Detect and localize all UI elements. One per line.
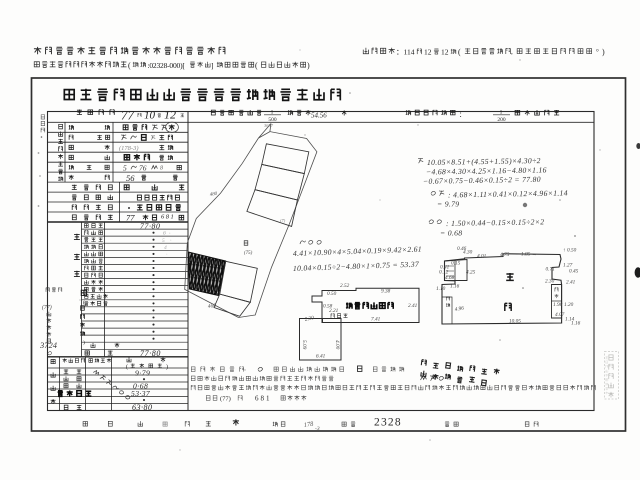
svg-text:,: , (511, 48, 513, 56)
svg-text:9.38: 9.38 (381, 289, 391, 295)
svg-text:4.75: 4.75 (500, 252, 510, 258)
svg-text:1.20: 1.20 (564, 302, 574, 308)
svg-text:4.68: 4.68 (445, 275, 455, 281)
svg-text:：: ： (459, 112, 466, 119)
svg-text:4.00: 4.00 (334, 340, 340, 350)
svg-text:: 4.68×1.11×0.41×0.12×4.96×1.1: : 4.68×1.11×0.41×0.12×4.96×1.14 (448, 188, 568, 199)
svg-text:): ) (166, 364, 168, 371)
svg-text:5.09: 5.09 (301, 340, 307, 350)
svg-text:7.41: 7.41 (371, 317, 381, 323)
svg-text:77: 77 (126, 213, 135, 223)
svg-text:3724: 3724 (39, 340, 58, 350)
svg-text::02328-000)[: :02328-000)[ (148, 61, 186, 70)
svg-text:(77): (77) (220, 396, 231, 403)
svg-text:681: 681 (161, 214, 175, 221)
svg-text:-3: -3 (315, 426, 320, 432)
svg-text:9·79: 9·79 (135, 368, 150, 377)
svg-text:53·37: 53·37 (131, 389, 151, 398)
svg-text:5: 5 (162, 238, 165, 244)
svg-text:77·80: 77·80 (140, 222, 161, 231)
svg-text:): ) (83, 339, 85, 346)
svg-text:2.52: 2.52 (340, 283, 350, 289)
svg-text:56: 56 (126, 173, 135, 183)
svg-text:12: 12 (424, 48, 432, 57)
svg-text:4.25: 4.25 (466, 270, 476, 276)
svg-text:4.07: 4.07 (555, 312, 565, 318)
svg-text:0.15: 0.15 (451, 261, 461, 267)
svg-text:3687: 3687 (264, 123, 274, 128)
svg-text:(77): (77) (42, 304, 52, 311)
svg-text:(75): (75) (244, 251, 253, 256)
svg-text:460: 460 (207, 302, 216, 310)
svg-text:1.16: 1.16 (571, 321, 581, 327)
svg-text:4.41×10.90×4×5.04×0.19×9.42×2.: 4.41×10.90×4×5.04×0.19×9.42×2.61 (293, 244, 422, 258)
svg-text:4: 4 (164, 244, 167, 251)
svg-text:°: ° (596, 48, 599, 56)
svg-text:0.71: 0.71 (546, 267, 556, 273)
svg-text:): ) (307, 61, 310, 70)
svg-text:200: 200 (497, 117, 506, 123)
svg-text:): ) (602, 48, 605, 57)
svg-text:12: 12 (441, 48, 449, 57)
svg-text:681: 681 (255, 395, 272, 403)
svg-text:2.41: 2.41 (408, 303, 418, 309)
svg-text:2.21: 2.21 (329, 308, 339, 314)
svg-text:0.12: 0.12 (439, 270, 449, 276)
svg-text:(: ( (128, 61, 131, 70)
svg-text:(: ( (126, 364, 128, 371)
svg-text:(7): (7) (280, 218, 286, 223)
svg-text:(178-3): (178-3) (119, 145, 139, 152)
svg-text:12: 12 (164, 108, 176, 122)
svg-text:2.30: 2.30 (304, 315, 315, 323)
svg-text:76: 76 (139, 164, 147, 173)
svg-text:6: 6 (163, 231, 166, 237)
svg-text:5: 5 (123, 164, 127, 173)
svg-text:1.16: 1.16 (450, 284, 460, 290)
svg-text:↑ 0.50: ↑ 0.50 (563, 248, 577, 254)
svg-text:77: 77 (121, 108, 135, 123)
svg-text:1.85 →: 1.85 → (521, 252, 537, 258)
svg-text:= 9.79: = 9.79 (437, 200, 459, 209)
svg-text:10: 10 (144, 110, 156, 122)
svg-text:(: ( (458, 48, 461, 57)
svg-text:4.01: 4.01 (477, 254, 487, 260)
svg-text:10.05: 10.05 (509, 319, 521, 325)
svg-text:63·80: 63·80 (132, 403, 153, 412)
svg-text:−0.67×0.75−0.46×0.15÷2 = 77.80: −0.67×0.75−0.46×0.15÷2 = 77.80 (423, 175, 541, 186)
svg-text:54.56: 54.56 (311, 112, 327, 120)
svg-text:1.98: 1.98 (553, 302, 563, 308)
svg-text:178: 178 (303, 421, 314, 429)
svg-text:8: 8 (160, 166, 163, 172)
svg-text:2328: 2328 (374, 417, 402, 429)
svg-text:1.10: 1.10 (436, 286, 446, 292)
svg-text:: 1.50×0.44−0.15×0.15÷2×2: : 1.50×0.44−0.15×0.15÷2×2 (446, 217, 545, 228)
svg-text:：114: ：114 (396, 48, 415, 57)
svg-text:6.41: 6.41 (316, 354, 326, 360)
svg-text:2.30: 2.30 (545, 279, 555, 285)
svg-text:0.50: 0.50 (327, 291, 337, 297)
svg-text:0.46: 0.46 (457, 246, 467, 252)
svg-text:10.04×0.15÷2−4.80×1×0.75 = 53.: 10.04×0.15÷2−4.80×1×0.75 = 53.37 (293, 260, 420, 273)
svg-text:= 0.68: = 0.68 (440, 229, 462, 238)
svg-text:0.45: 0.45 (569, 269, 579, 275)
svg-text:2.41: 2.41 (566, 280, 576, 286)
svg-text:4.96: 4.96 (454, 305, 465, 313)
svg-text:]: ] (211, 61, 214, 70)
svg-text:(: ( (255, 61, 258, 70)
